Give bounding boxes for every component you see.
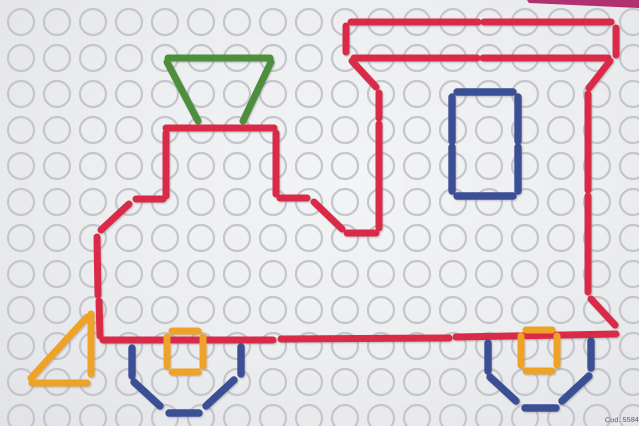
peg-hole: [8, 9, 34, 35]
peg-hole: [188, 261, 214, 287]
peg-hole: [476, 117, 502, 143]
peg-hole: [332, 369, 358, 395]
peg-hole: [8, 405, 34, 426]
peg-hole: [296, 405, 322, 426]
peg-grid: [8, 9, 639, 426]
peg-hole: [296, 81, 322, 107]
peg-hole: [44, 225, 70, 251]
peg-hole: [512, 225, 538, 251]
peg-hole: [296, 369, 322, 395]
peg-hole: [8, 225, 34, 251]
peg-hole: [332, 261, 358, 287]
peg-hole: [476, 261, 502, 287]
front-wall-vertical-2: [99, 301, 100, 336]
peg-hole: [404, 153, 430, 179]
front-wall-vertical-1: [97, 237, 98, 295]
peg-hole: [80, 261, 106, 287]
boiler-step-right-diagonal: [314, 202, 342, 229]
front-wheel-left-diagonal: [134, 382, 160, 406]
peg-hole: [296, 45, 322, 71]
peg-hole: [476, 405, 502, 426]
peg-hole: [332, 153, 358, 179]
peg-hole: [440, 405, 466, 426]
peg-hole: [260, 297, 286, 323]
peg-hole: [260, 405, 286, 426]
peg-hole: [476, 225, 502, 251]
funnel-right-diagonal: [243, 62, 271, 121]
peg-hole: [116, 9, 142, 35]
roof-diagonal-left: [352, 61, 376, 87]
peg-hole: [620, 369, 639, 395]
peg-hole: [116, 45, 142, 71]
peg-hole: [116, 297, 142, 323]
peg-hole: [116, 261, 142, 287]
peg-hole: [296, 117, 322, 143]
peg-hole: [44, 45, 70, 71]
peg-hole: [548, 189, 574, 215]
peg-hole: [620, 45, 639, 71]
peg-hole: [188, 297, 214, 323]
peg-hole: [8, 153, 34, 179]
peg-hole: [152, 81, 178, 107]
peg-hole: [152, 261, 178, 287]
peg-hole: [152, 225, 178, 251]
peg-hole: [260, 9, 286, 35]
peg-hole: [116, 117, 142, 143]
peg-hole: [188, 9, 214, 35]
peg-hole: [368, 405, 394, 426]
peg-hole: [8, 261, 34, 287]
peg-hole: [620, 81, 639, 107]
peg-hole: [404, 225, 430, 251]
peg-hole: [620, 333, 639, 359]
peg-hole: [404, 81, 430, 107]
peg-hole: [332, 81, 358, 107]
peg-hole: [404, 369, 430, 395]
peg-hole: [512, 261, 538, 287]
peg-hole: [224, 153, 250, 179]
peg-hole: [116, 405, 142, 426]
peg-hole: [548, 297, 574, 323]
peg-hole: [44, 117, 70, 143]
peg-hole: [8, 333, 34, 359]
peg-hole: [80, 81, 106, 107]
peg-hole: [440, 369, 466, 395]
peg-hole: [224, 261, 250, 287]
peg-hole: [116, 153, 142, 179]
peg-hole: [44, 153, 70, 179]
peg-hole: [80, 9, 106, 35]
peg-hole: [296, 225, 322, 251]
peg-hole: [224, 189, 250, 215]
peg-hole: [80, 153, 106, 179]
peg-hole: [224, 297, 250, 323]
peg-hole: [80, 405, 106, 426]
peg-hole: [332, 297, 358, 323]
peg-hole: [80, 117, 106, 143]
peg-hole: [188, 153, 214, 179]
peg-hole: [548, 81, 574, 107]
peg-hole: [8, 297, 34, 323]
peg-hole: [548, 225, 574, 251]
background-edge-strip: [527, 0, 639, 8]
peg-hole: [368, 297, 394, 323]
peg-hole: [8, 117, 34, 143]
peg-hole: [296, 297, 322, 323]
peg-hole: [620, 189, 639, 215]
peg-hole: [80, 45, 106, 71]
peg-hole: [8, 81, 34, 107]
peg-hole: [8, 189, 34, 215]
peg-hole: [620, 261, 639, 287]
product-code-label: Cod. 5584: [605, 417, 639, 425]
peg-hole: [152, 9, 178, 35]
chassis-bottom-2: [281, 338, 449, 339]
pegboard-surface: [0, 0, 639, 426]
peg-hole: [440, 225, 466, 251]
peg-hole: [548, 261, 574, 287]
peg-hole: [404, 297, 430, 323]
funnel-left-diagonal: [167, 62, 198, 121]
peg-hole: [44, 405, 70, 426]
peg-hole: [548, 153, 574, 179]
peg-hole: [476, 297, 502, 323]
peg-hole: [332, 189, 358, 215]
peg-hole: [296, 153, 322, 179]
peg-hole: [620, 297, 639, 323]
peg-hole: [404, 261, 430, 287]
peg-hole: [404, 117, 430, 143]
peg-hole: [260, 369, 286, 395]
peg-hole: [332, 117, 358, 143]
peg-hole: [116, 81, 142, 107]
peg-hole: [224, 81, 250, 107]
peg-hole: [296, 9, 322, 35]
peg-hole: [224, 405, 250, 426]
peg-hole: [368, 261, 394, 287]
peg-hole: [152, 297, 178, 323]
peg-hole: [368, 369, 394, 395]
peg-hole: [620, 117, 639, 143]
peg-hole: [224, 225, 250, 251]
peg-hole: [44, 261, 70, 287]
peg-hole: [620, 9, 639, 35]
peg-hole: [116, 225, 142, 251]
peg-hole: [44, 189, 70, 215]
peg-hole: [44, 297, 70, 323]
peg-hole: [620, 153, 639, 179]
pegboard-activity-card: Cod. 5584: [0, 0, 639, 426]
peg-hole: [332, 405, 358, 426]
peg-hole: [188, 189, 214, 215]
peg-hole: [296, 261, 322, 287]
peg-hole: [80, 189, 106, 215]
peg-hole: [404, 189, 430, 215]
peg-hole: [404, 405, 430, 426]
peg-hole: [188, 225, 214, 251]
peg-hole: [260, 225, 286, 251]
peg-hole: [440, 261, 466, 287]
peg-hole: [44, 81, 70, 107]
peg-hole: [512, 297, 538, 323]
chassis-bottom-3: [456, 334, 616, 337]
peg-hole: [476, 153, 502, 179]
peg-hole: [620, 225, 639, 251]
peg-hole: [260, 261, 286, 287]
peg-hole: [440, 297, 466, 323]
peg-hole: [548, 117, 574, 143]
peg-hole: [44, 9, 70, 35]
peg-hole: [224, 9, 250, 35]
peg-hole: [8, 45, 34, 71]
